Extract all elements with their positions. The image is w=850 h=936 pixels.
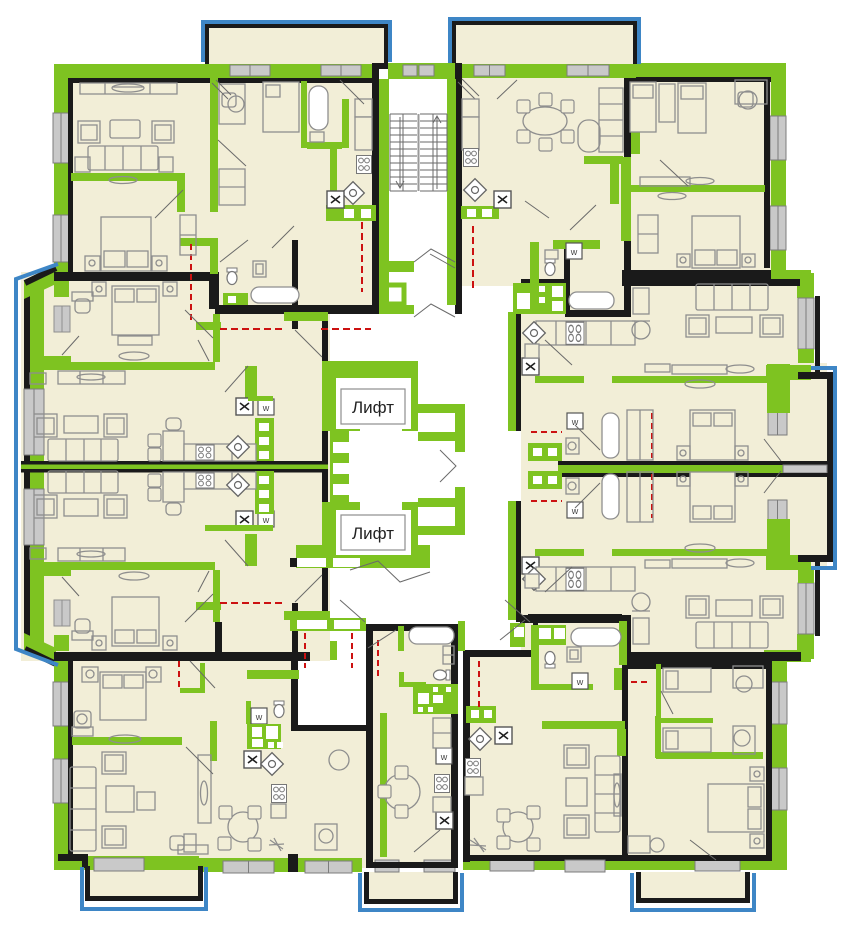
svg-text:Лифт: Лифт — [352, 524, 394, 543]
svg-text:Лифт: Лифт — [352, 398, 394, 417]
